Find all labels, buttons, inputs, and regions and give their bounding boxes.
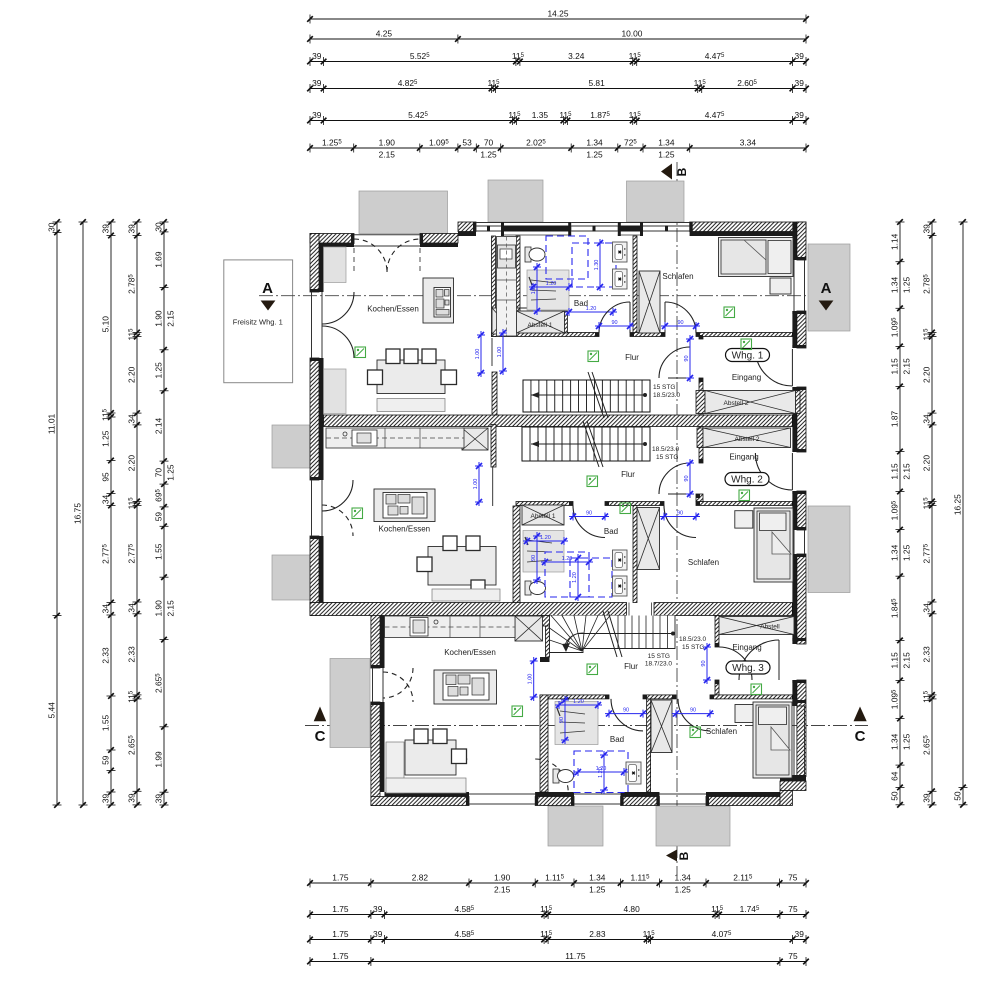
svg-text:90: 90 (684, 355, 690, 361)
svg-text:1.34: 1.34 (890, 544, 900, 561)
svg-text:39: 39 (795, 110, 805, 120)
svg-text:90: 90 (611, 320, 617, 326)
svg-text:1.34: 1.34 (890, 277, 900, 294)
svg-text:5.10: 5.10 (101, 316, 111, 333)
svg-text:Kochen/Essen: Kochen/Essen (444, 648, 496, 657)
svg-text:A: A (262, 280, 273, 297)
svg-text:Abstell 2: Abstell 2 (735, 436, 760, 443)
svg-text:34: 34 (127, 414, 137, 424)
svg-text:C: C (315, 728, 326, 745)
svg-text:1.75: 1.75 (332, 929, 349, 939)
svg-text:70: 70 (484, 138, 494, 148)
svg-text:1.90: 1.90 (494, 873, 511, 883)
svg-text:Bad: Bad (610, 735, 624, 744)
svg-text:1.15: 1.15 (890, 358, 900, 375)
svg-text:Kochen/Essen: Kochen/Essen (379, 525, 431, 534)
svg-text:Abstell: Abstell (760, 624, 780, 631)
svg-text:1.90: 1.90 (154, 600, 164, 617)
svg-text:15 STG: 15 STG (656, 454, 678, 461)
svg-text:1.14: 1.14 (890, 233, 900, 250)
svg-text:1.25: 1.25 (675, 885, 692, 895)
svg-text:2.15: 2.15 (902, 463, 912, 480)
svg-text:3.24: 3.24 (568, 51, 585, 61)
svg-text:1.75: 1.75 (332, 951, 349, 961)
svg-text:10.00: 10.00 (621, 29, 642, 39)
svg-text:39: 39 (795, 51, 805, 61)
svg-text:1.34: 1.34 (658, 138, 675, 148)
svg-text:11.75: 11.75 (565, 951, 586, 961)
svg-text:39: 39 (922, 224, 932, 234)
svg-text:A: A (821, 280, 832, 297)
svg-text:Eingang: Eingang (732, 643, 761, 652)
svg-text:39: 39 (312, 110, 322, 120)
svg-text:1.25: 1.25 (101, 430, 111, 447)
svg-text:39: 39 (373, 904, 383, 914)
svg-text:39: 39 (373, 929, 383, 939)
svg-text:1.15: 1.15 (890, 652, 900, 669)
svg-text:30: 30 (47, 222, 57, 232)
svg-text:39: 39 (127, 224, 137, 234)
svg-text:Flur: Flur (621, 470, 635, 479)
svg-text:Abstell 2: Abstell 2 (724, 400, 749, 407)
svg-text:1.25: 1.25 (154, 362, 164, 379)
svg-text:90: 90 (701, 660, 707, 666)
svg-text:90: 90 (690, 708, 696, 714)
svg-text:1.35: 1.35 (532, 110, 549, 120)
svg-text:90: 90 (684, 475, 690, 481)
svg-text:1.30: 1.30 (594, 260, 600, 271)
svg-text:Freisitz Whg. 1: Freisitz Whg. 1 (233, 318, 283, 327)
svg-text:18.7/23.0: 18.7/23.0 (645, 661, 672, 668)
svg-text:75: 75 (788, 873, 798, 883)
svg-text:1.34: 1.34 (890, 733, 900, 750)
svg-text:Eingang: Eingang (729, 453, 758, 462)
svg-text:Schlafen: Schlafen (706, 727, 737, 736)
svg-text:2.82: 2.82 (412, 873, 429, 883)
svg-text:90: 90 (559, 717, 565, 723)
svg-text:1.25: 1.25 (586, 150, 603, 160)
svg-text:2.83: 2.83 (589, 929, 606, 939)
svg-text:4.80: 4.80 (623, 904, 640, 914)
svg-text:C: C (855, 728, 866, 745)
svg-text:B: B (675, 167, 689, 176)
svg-text:1.20: 1.20 (540, 535, 551, 541)
svg-text:1.69: 1.69 (154, 251, 164, 268)
svg-text:1.34: 1.34 (586, 138, 603, 148)
svg-text:1.20: 1.20 (562, 556, 573, 562)
svg-text:1.20: 1.20 (546, 281, 557, 287)
svg-text:2.15: 2.15 (379, 150, 396, 160)
svg-text:Whg. 1: Whg. 1 (732, 350, 764, 361)
svg-text:90: 90 (586, 511, 592, 517)
svg-text:2.20: 2.20 (922, 366, 932, 383)
svg-text:1.75: 1.75 (332, 873, 349, 883)
svg-text:1.20: 1.20 (598, 767, 604, 778)
svg-text:2.20: 2.20 (127, 366, 137, 383)
svg-text:1.25: 1.25 (902, 544, 912, 561)
svg-text:Bad: Bad (574, 299, 588, 308)
svg-text:1.00: 1.00 (473, 479, 479, 490)
svg-text:Flur: Flur (625, 353, 639, 362)
svg-text:1.25: 1.25 (902, 277, 912, 294)
svg-text:18.5/23.0: 18.5/23.0 (679, 636, 706, 643)
svg-text:Whg. 2: Whg. 2 (731, 474, 763, 485)
svg-text:64: 64 (890, 771, 900, 781)
svg-text:15 STG: 15 STG (682, 644, 704, 651)
svg-text:39: 39 (154, 794, 164, 804)
svg-text:1.75: 1.75 (332, 904, 349, 914)
svg-text:18.5/23.0: 18.5/23.0 (653, 392, 680, 399)
svg-text:1.00: 1.00 (528, 674, 534, 685)
svg-text:39: 39 (795, 78, 805, 88)
svg-text:1.20: 1.20 (572, 572, 578, 583)
svg-text:Kochen/Essen: Kochen/Essen (367, 305, 419, 314)
svg-text:59: 59 (101, 755, 111, 765)
svg-text:34: 34 (922, 414, 932, 424)
svg-text:16.25: 16.25 (953, 494, 963, 515)
svg-text:90: 90 (623, 708, 629, 714)
svg-text:5.81: 5.81 (588, 78, 605, 88)
svg-text:75: 75 (788, 951, 798, 961)
svg-text:1.20: 1.20 (573, 699, 584, 705)
svg-text:2.20: 2.20 (922, 455, 932, 472)
svg-text:Whg. 3: Whg. 3 (732, 663, 764, 674)
svg-text:39: 39 (101, 794, 111, 804)
svg-text:2.15: 2.15 (166, 310, 176, 327)
svg-text:2.33: 2.33 (101, 647, 111, 664)
svg-text:15 STG: 15 STG (653, 384, 675, 391)
svg-text:5.44: 5.44 (47, 702, 57, 719)
svg-text:39: 39 (795, 929, 805, 939)
svg-text:1.25: 1.25 (658, 150, 675, 160)
svg-text:Schlafen: Schlafen (688, 558, 719, 567)
svg-text:2.20: 2.20 (127, 455, 137, 472)
svg-text:39: 39 (312, 51, 322, 61)
svg-text:1.25: 1.25 (589, 885, 606, 895)
svg-text:75: 75 (788, 904, 798, 914)
svg-text:Schlafen: Schlafen (662, 272, 693, 281)
svg-text:59: 59 (154, 512, 164, 522)
svg-text:Flur: Flur (624, 662, 638, 671)
svg-text:95: 95 (101, 472, 111, 482)
svg-text:30: 30 (154, 222, 164, 232)
svg-text:1.25: 1.25 (166, 464, 176, 481)
svg-text:1.00: 1.00 (475, 349, 481, 360)
svg-text:39: 39 (312, 78, 322, 88)
svg-text:1.15: 1.15 (890, 463, 900, 480)
svg-text:1.87: 1.87 (890, 410, 900, 427)
svg-text:2.15: 2.15 (494, 885, 511, 895)
svg-text:Eingang: Eingang (732, 373, 761, 382)
svg-text:15 STG: 15 STG (648, 653, 670, 660)
svg-text:34: 34 (922, 603, 932, 613)
svg-text:39: 39 (127, 793, 137, 803)
svg-text:70: 70 (154, 468, 164, 478)
svg-text:2.15: 2.15 (902, 652, 912, 669)
svg-text:1.90: 1.90 (379, 138, 396, 148)
svg-text:4.25: 4.25 (376, 29, 393, 39)
svg-text:90: 90 (677, 320, 683, 326)
svg-text:50: 50 (953, 791, 963, 801)
svg-text:B: B (677, 851, 691, 860)
svg-text:18.5/23.0: 18.5/23.0 (652, 446, 679, 453)
svg-text:Abstell 1: Abstell 1 (528, 322, 553, 329)
svg-text:Abstell 1: Abstell 1 (531, 513, 556, 520)
svg-text:34: 34 (101, 495, 111, 505)
svg-text:50: 50 (890, 791, 900, 801)
svg-text:39: 39 (922, 793, 932, 803)
svg-text:14.25: 14.25 (548, 9, 569, 19)
svg-text:1.90: 1.90 (154, 310, 164, 327)
svg-text:2.33: 2.33 (922, 646, 932, 663)
svg-text:2.15: 2.15 (166, 600, 176, 617)
svg-text:3.34: 3.34 (740, 138, 757, 148)
svg-text:16.75: 16.75 (73, 503, 83, 524)
svg-text:1.55: 1.55 (154, 543, 164, 560)
svg-text:2.15: 2.15 (902, 358, 912, 375)
svg-text:2.14: 2.14 (154, 417, 164, 434)
svg-text:1.25: 1.25 (902, 733, 912, 750)
svg-text:53: 53 (462, 138, 472, 148)
svg-text:90: 90 (531, 555, 537, 561)
svg-text:1.55: 1.55 (101, 715, 111, 732)
svg-text:34: 34 (127, 603, 137, 613)
svg-text:1.99: 1.99 (154, 751, 164, 768)
svg-text:Bad: Bad (604, 527, 618, 536)
svg-text:39: 39 (101, 224, 111, 234)
svg-text:2.33: 2.33 (127, 646, 137, 663)
svg-text:1.25: 1.25 (480, 150, 497, 160)
svg-text:90: 90 (677, 511, 683, 517)
svg-text:34: 34 (101, 604, 111, 614)
svg-text:11.01: 11.01 (47, 413, 57, 434)
svg-text:1.00: 1.00 (497, 347, 503, 358)
svg-text:1.34: 1.34 (589, 873, 606, 883)
